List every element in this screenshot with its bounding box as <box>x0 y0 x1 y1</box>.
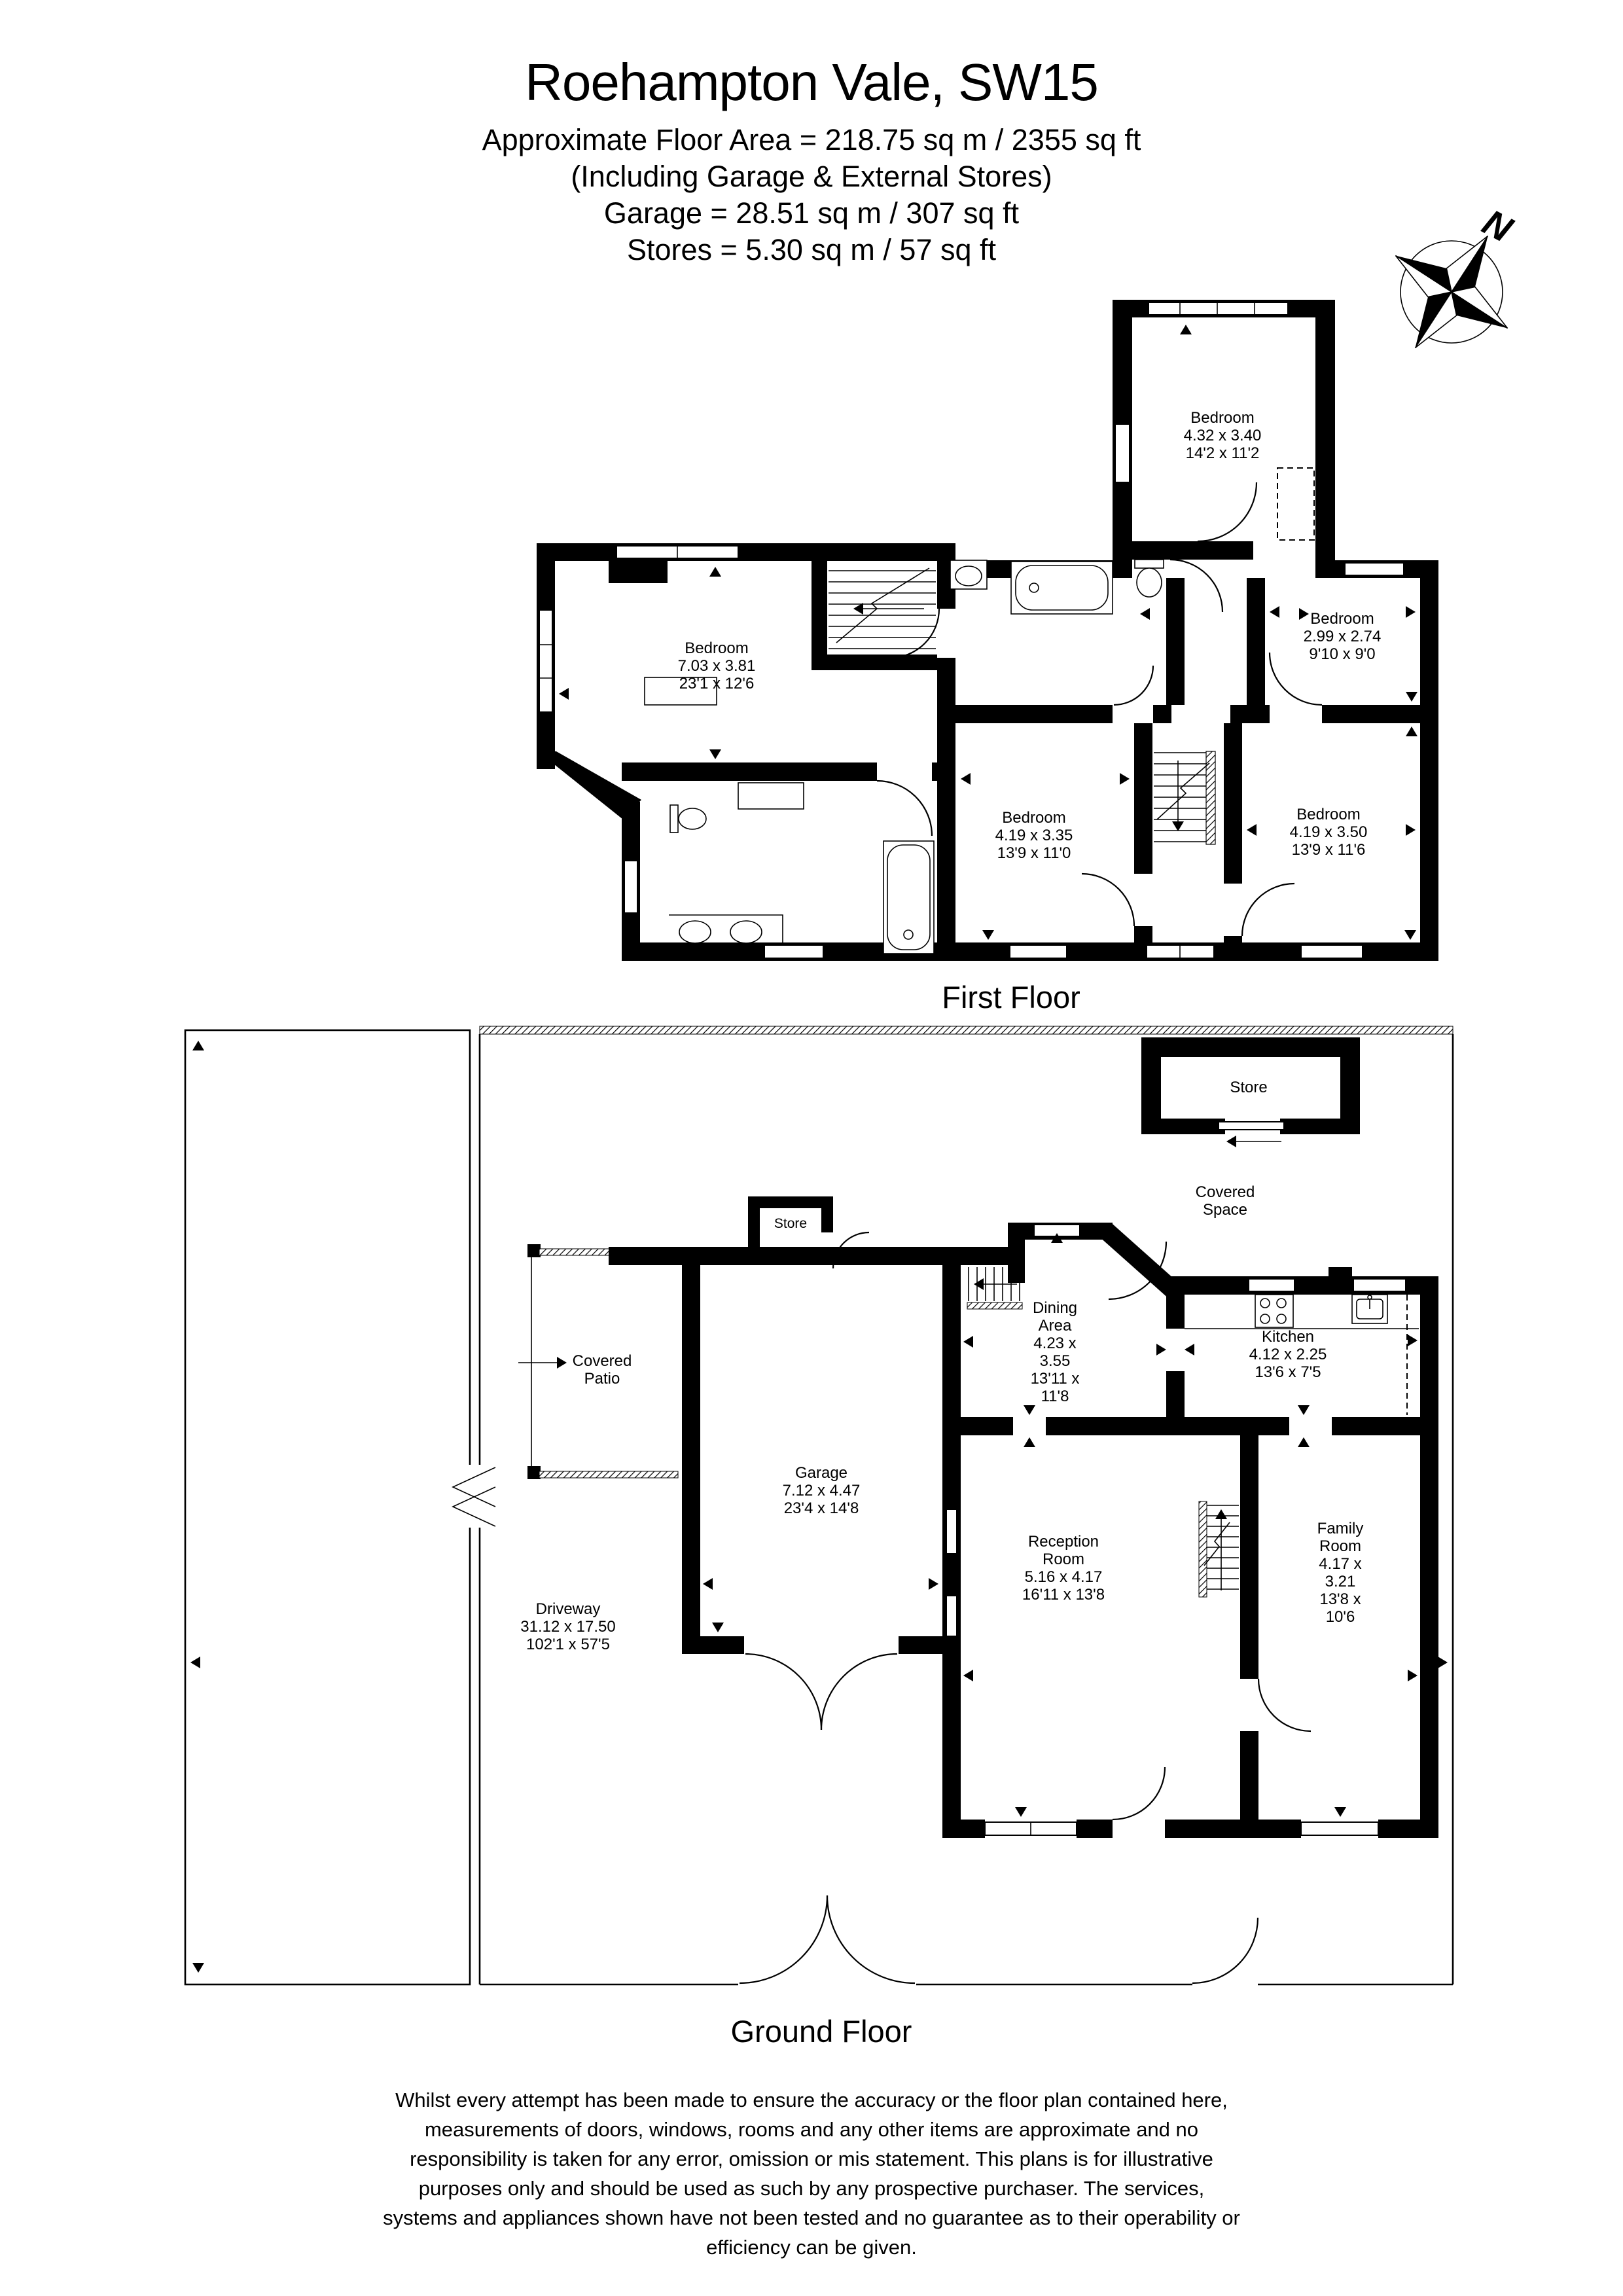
toilet-icon <box>670 805 706 833</box>
room-label-bedroom-master: Bedroom 7.03 x 3.81 23'1 x 12'6 <box>661 639 772 692</box>
sliding-door-icon <box>1219 1122 1284 1130</box>
garage-door-icon <box>821 1654 897 1730</box>
including-line: (Including Garage & External Stores) <box>0 158 1623 195</box>
kitchen-sink-icon <box>1352 1295 1387 1323</box>
bathtub-icon <box>883 841 934 954</box>
room-label-store-external: Store <box>1209 1079 1288 1096</box>
floor-area-line: Approximate Floor Area = 218.75 sq m / 2… <box>0 122 1623 158</box>
room-label-bedroom-rear: Bedroom 4.19 x 3.50 13'9 x 11'6 <box>1273 806 1384 859</box>
room-label-reception-room: Reception Room 5.16 x 4.17 16'11 x 13'8 <box>1021 1533 1106 1604</box>
furniture-icon <box>738 783 804 809</box>
room-label-bedroom-small: Bedroom 2.99 x 2.74 9'10 x 9'0 <box>1287 610 1398 663</box>
gate-icon <box>827 1895 915 1983</box>
gate-icon <box>740 1895 827 1983</box>
disclaimer-text: Whilst every attempt has been made to en… <box>0 2085 1623 2262</box>
toilet-icon <box>1135 560 1164 597</box>
vanity-sinks-icon <box>669 915 783 943</box>
room-label-driveway: Driveway 31.12 x 17.50 102'1 x 57'5 <box>503 1600 633 1653</box>
staircase-icon <box>1199 1501 1239 1597</box>
ground-floor-caption: Ground Floor <box>731 2013 912 2049</box>
room-label-dining-area: Dining Area 4.23 x 3.55 13'11 x 11'8 <box>1022 1299 1088 1405</box>
room-label-garage: Garage 7.12 x 4.47 23'4 x 14'8 <box>766 1464 877 1517</box>
first-floor-windows <box>539 302 1404 958</box>
first-floor-caption: First Floor <box>942 979 1080 1015</box>
room-label-bedroom-middle: Bedroom 4.19 x 3.35 13'9 x 11'0 <box>978 809 1090 862</box>
room-label-bedroom-top: Bedroom 4.32 x 3.40 14'2 x 11'2 <box>1167 409 1278 462</box>
sink-icon <box>950 560 987 589</box>
garage-door-icon <box>745 1654 821 1730</box>
wardrobe-icon <box>1277 468 1314 540</box>
staircase-icon <box>829 568 936 649</box>
staircase-icon <box>1154 751 1215 844</box>
room-label-family-room: Family Room 4.17 x 3.21 13'8 x 10'6 <box>1308 1520 1373 1626</box>
room-label-kitchen: Kitchen 4.12 x 2.25 13'6 x 7'5 <box>1232 1328 1344 1381</box>
gate-icon <box>1192 1918 1258 1983</box>
room-label-store-garden: Store <box>764 1215 817 1232</box>
room-label-covered-patio: Covered Patio <box>566 1352 638 1388</box>
page-title: Roehampton Vale, SW15 <box>0 52 1623 113</box>
room-label-covered-space: Covered Space <box>1189 1183 1261 1219</box>
hob-icon <box>1255 1295 1293 1327</box>
bathtub-icon <box>1011 562 1113 614</box>
